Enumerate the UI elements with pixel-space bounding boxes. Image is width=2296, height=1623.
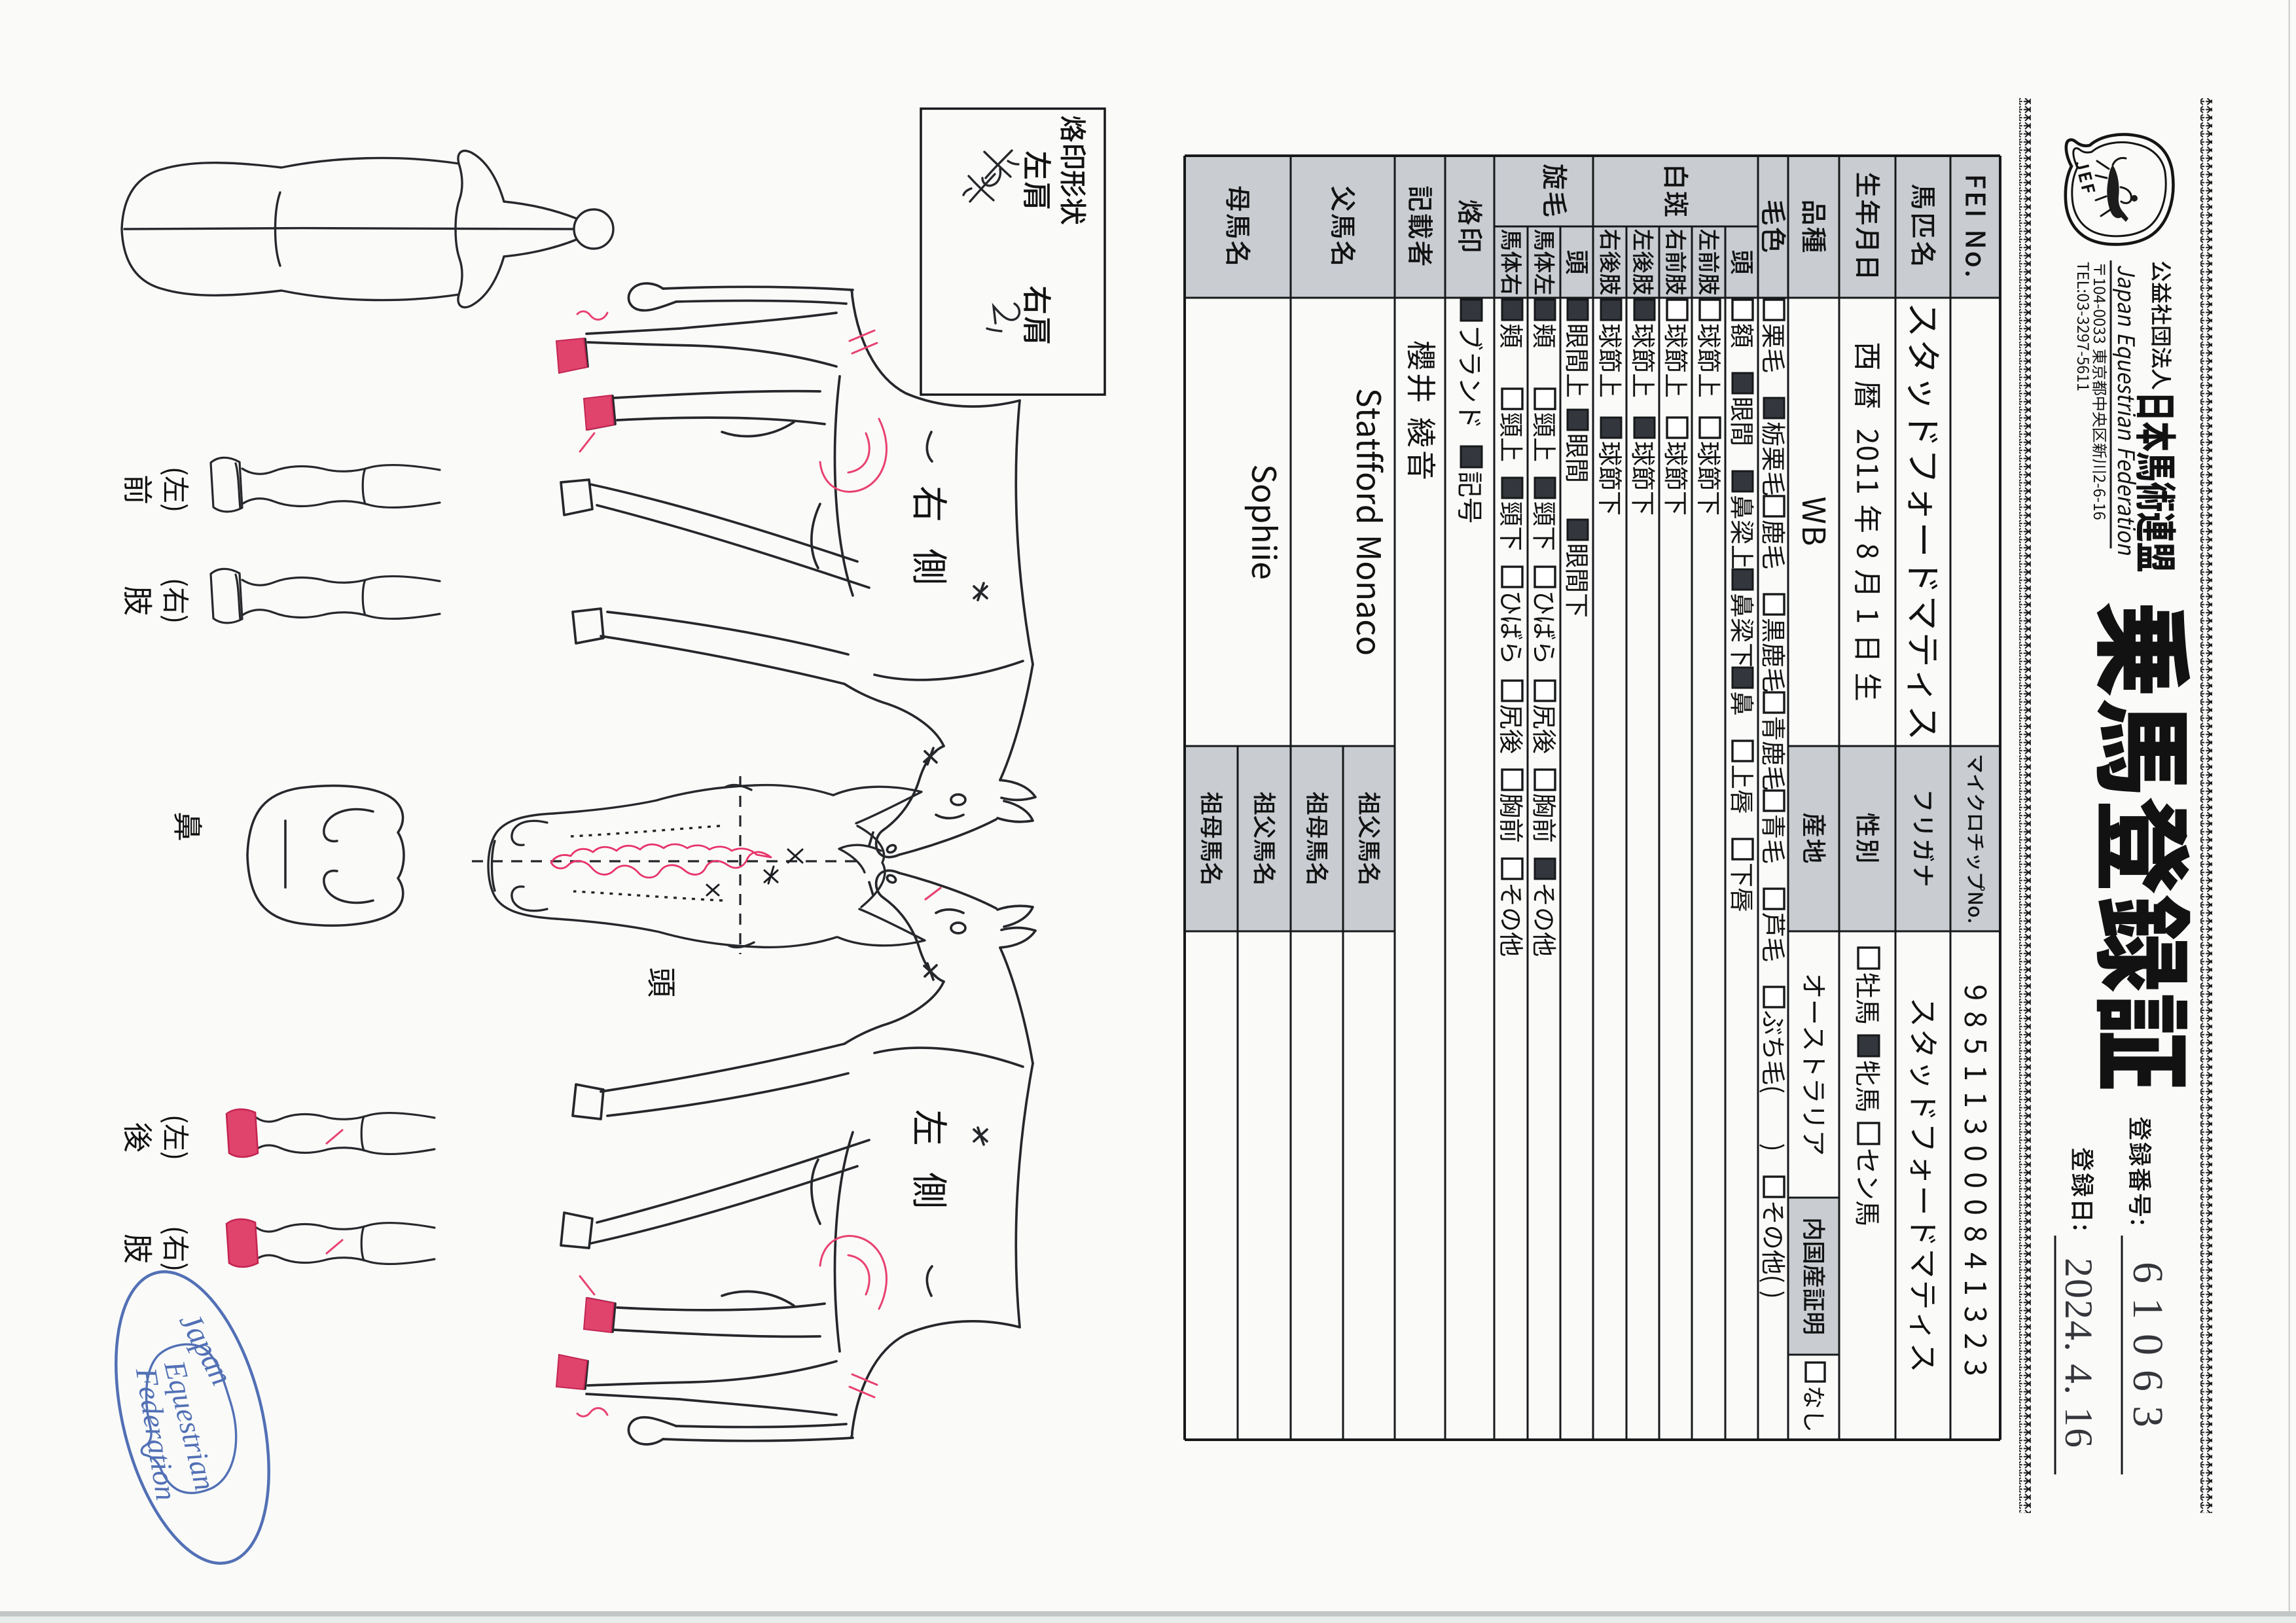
svg-text:61063: 61063 bbox=[2124, 1262, 2172, 1442]
svg-text:2024. 4. 16: 2024. 4. 16 bbox=[2057, 1258, 2100, 1449]
